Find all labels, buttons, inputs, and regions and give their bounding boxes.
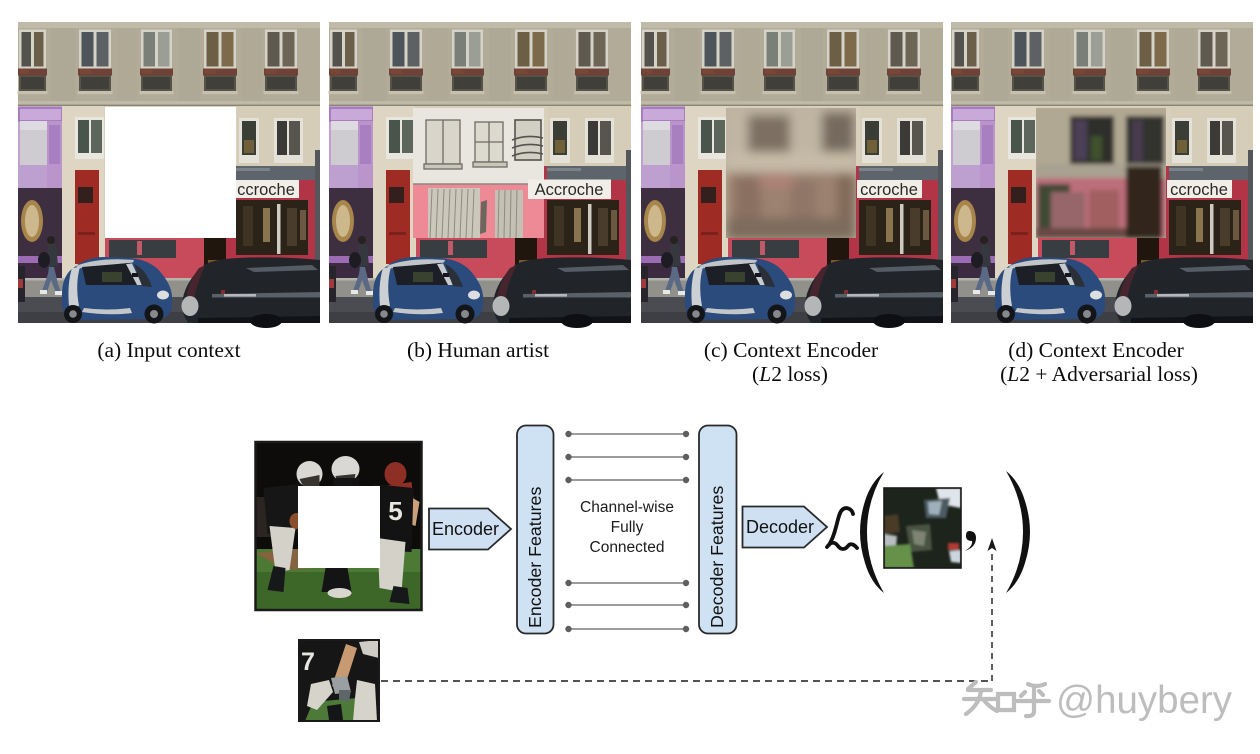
svg-text:Channel-wise: Channel-wise: [580, 499, 674, 516]
svg-text:Encoder: Encoder: [432, 519, 499, 539]
svg-text:@huybery: @huybery: [1056, 679, 1233, 722]
svg-text:Decoder: Decoder: [746, 517, 814, 537]
svg-text:Encoder Features: Encoder Features: [525, 487, 545, 628]
svg-text:(L2 loss): (L2 loss): [752, 362, 828, 386]
svg-text:Accroche: Accroche: [535, 181, 604, 199]
svg-text:Connected: Connected: [590, 539, 665, 556]
svg-text:(L2 + Adversarial loss): (L2 + Adversarial loss): [1000, 362, 1198, 386]
svg-text:(a) Input context: (a) Input context: [97, 338, 240, 362]
svg-text:Fully: Fully: [611, 519, 644, 536]
svg-text:7: 7: [301, 648, 315, 676]
svg-text:(b) Human artist: (b) Human artist: [407, 338, 549, 362]
svg-text:Decoder Features: Decoder Features: [707, 486, 727, 628]
svg-text:(c) Context Encoder: (c) Context Encoder: [704, 338, 878, 362]
svg-text:(d) Context Encoder: (d) Context Encoder: [1008, 338, 1184, 362]
